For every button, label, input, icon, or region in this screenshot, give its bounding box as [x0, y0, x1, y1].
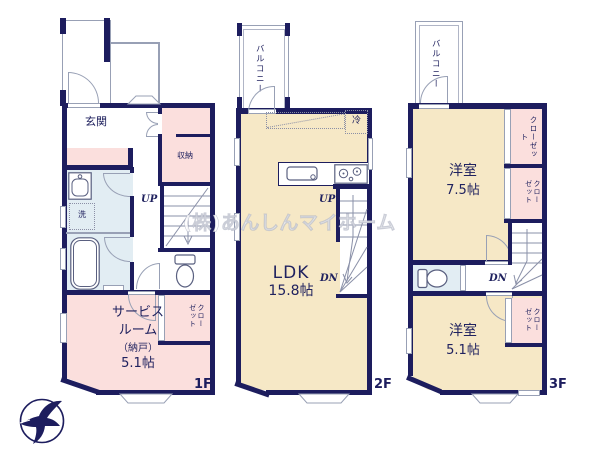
- kitchen-sink-icon: [286, 166, 320, 182]
- floor-label-2f: 2F: [374, 377, 392, 392]
- entrance-opening: [68, 103, 100, 108]
- door-leaf: [146, 112, 158, 113]
- room-a-name: 洋室: [413, 164, 513, 179]
- sliding-door: [460, 265, 466, 291]
- wall: [62, 165, 133, 170]
- room-a-size: 7.5帖: [413, 184, 513, 198]
- room-storage: [162, 108, 210, 184]
- stairs-up-label: UP: [319, 194, 335, 205]
- door-arc: [136, 263, 160, 289]
- door-leaf: [447, 76, 448, 103]
- entrance-label: 玄関: [66, 116, 126, 128]
- approach-line: [110, 42, 159, 44]
- toilet-icon: [417, 266, 449, 291]
- ldk-name: LDK: [241, 264, 341, 283]
- toilet-icon: [172, 254, 198, 290]
- window: [406, 328, 412, 354]
- laundry-label: 洗: [69, 211, 95, 220]
- room-b-name: 洋室: [413, 324, 513, 339]
- wall: [285, 23, 290, 36]
- wall: [130, 167, 134, 173]
- window: [234, 138, 240, 166]
- bay-window: [299, 394, 349, 404]
- window: [60, 206, 66, 228]
- folding-door-arc: [146, 112, 158, 124]
- stove-icon: [334, 164, 368, 184]
- door-opening: [128, 291, 155, 295]
- watermark: (株)あんしんマイホーム: [183, 208, 396, 235]
- closet-label: クローゼット: [513, 178, 541, 206]
- window: [406, 148, 412, 178]
- wall: [130, 262, 134, 292]
- hanger-pipe: [176, 134, 210, 137]
- service-room-label: サービス: [66, 306, 210, 320]
- service-room-size: 5.1帖: [66, 357, 210, 371]
- window: [60, 248, 66, 270]
- bay-window: [120, 394, 172, 404]
- window: [518, 390, 540, 396]
- stairs-icon: [512, 223, 542, 291]
- floorplan-canvas: 収納 玄関 洗: [0, 0, 600, 449]
- refrigerator-label: 冷: [345, 117, 368, 127]
- door-leaf: [486, 235, 487, 261]
- stairs-up-label: UP: [141, 194, 157, 205]
- floor-label-3f: 3F: [549, 377, 567, 392]
- ldk-size: 15.8帖: [241, 284, 341, 299]
- window: [368, 138, 373, 170]
- wall: [542, 103, 547, 395]
- window: [60, 313, 67, 343]
- floor-label-1f: 1F: [194, 377, 212, 392]
- wall: [104, 18, 110, 62]
- wall: [408, 291, 547, 296]
- wall-thin: [66, 232, 133, 234]
- wall: [60, 18, 66, 34]
- bathtub-icon: [70, 237, 100, 290]
- bay-window: [128, 96, 160, 104]
- service-room-note: （納戸）: [66, 343, 210, 354]
- closet-label: クローゼット: [516, 112, 538, 162]
- door-leaf: [146, 136, 158, 137]
- door-leaf: [274, 86, 275, 113]
- wall: [237, 23, 242, 36]
- door-leaf: [159, 263, 160, 289]
- door-leaf: [104, 237, 130, 238]
- closet-label: クローゼット: [513, 306, 541, 334]
- wall: [158, 248, 215, 252]
- folding-door-arc: [146, 124, 158, 136]
- wall: [158, 108, 162, 114]
- closet-door: [504, 109, 511, 164]
- room-b-size: 5.1帖: [413, 344, 513, 358]
- washbasin-icon: [68, 172, 92, 200]
- bay-window: [472, 394, 518, 404]
- service-room-label: ルーム: [66, 324, 210, 338]
- door-opening: [486, 292, 512, 296]
- door-leaf: [103, 173, 130, 174]
- stairs-down-label: DN: [489, 273, 507, 284]
- wall: [336, 294, 372, 298]
- wall: [130, 196, 134, 237]
- north-compass-icon: [16, 396, 68, 448]
- door-leaf: [68, 72, 69, 104]
- door-opening: [419, 104, 449, 109]
- storage-label: 収納: [162, 152, 208, 161]
- stairs-icon: [340, 189, 367, 294]
